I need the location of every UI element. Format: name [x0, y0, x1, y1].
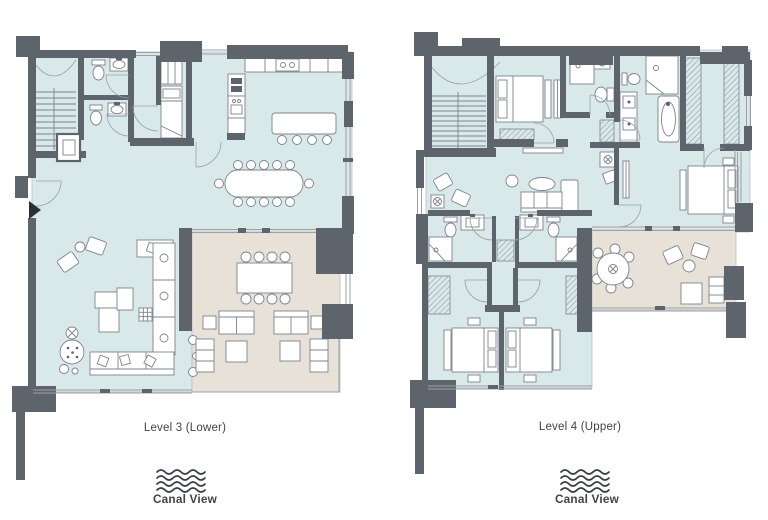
- shower: [429, 237, 452, 261]
- floor-plan-level-3-lower: [0, 0, 384, 520]
- canal-waves-icon: [155, 468, 207, 494]
- plan-label-level-3: Level 3 (Lower): [110, 422, 260, 434]
- canal-waves-icon: [559, 468, 611, 494]
- shower: [556, 237, 577, 261]
- small-bedroom: [161, 58, 182, 138]
- master-bedroom: [680, 158, 738, 223]
- canal-view-label: Canal View: [110, 492, 260, 506]
- lift: [57, 134, 80, 161]
- canal-view-label: Canal View: [512, 492, 662, 506]
- floor-plan-sheet: Level 3 (Lower) Level 4 (Upper) Canal Vi…: [0, 0, 768, 520]
- plan-label-level-4: Level 4 (Upper): [505, 421, 655, 433]
- toilet: [628, 74, 640, 85]
- shower: [646, 56, 678, 94]
- kitchen-island: [272, 113, 336, 134]
- floor-plan-level-4-upper: [384, 0, 768, 520]
- outdoor-table: [237, 263, 292, 293]
